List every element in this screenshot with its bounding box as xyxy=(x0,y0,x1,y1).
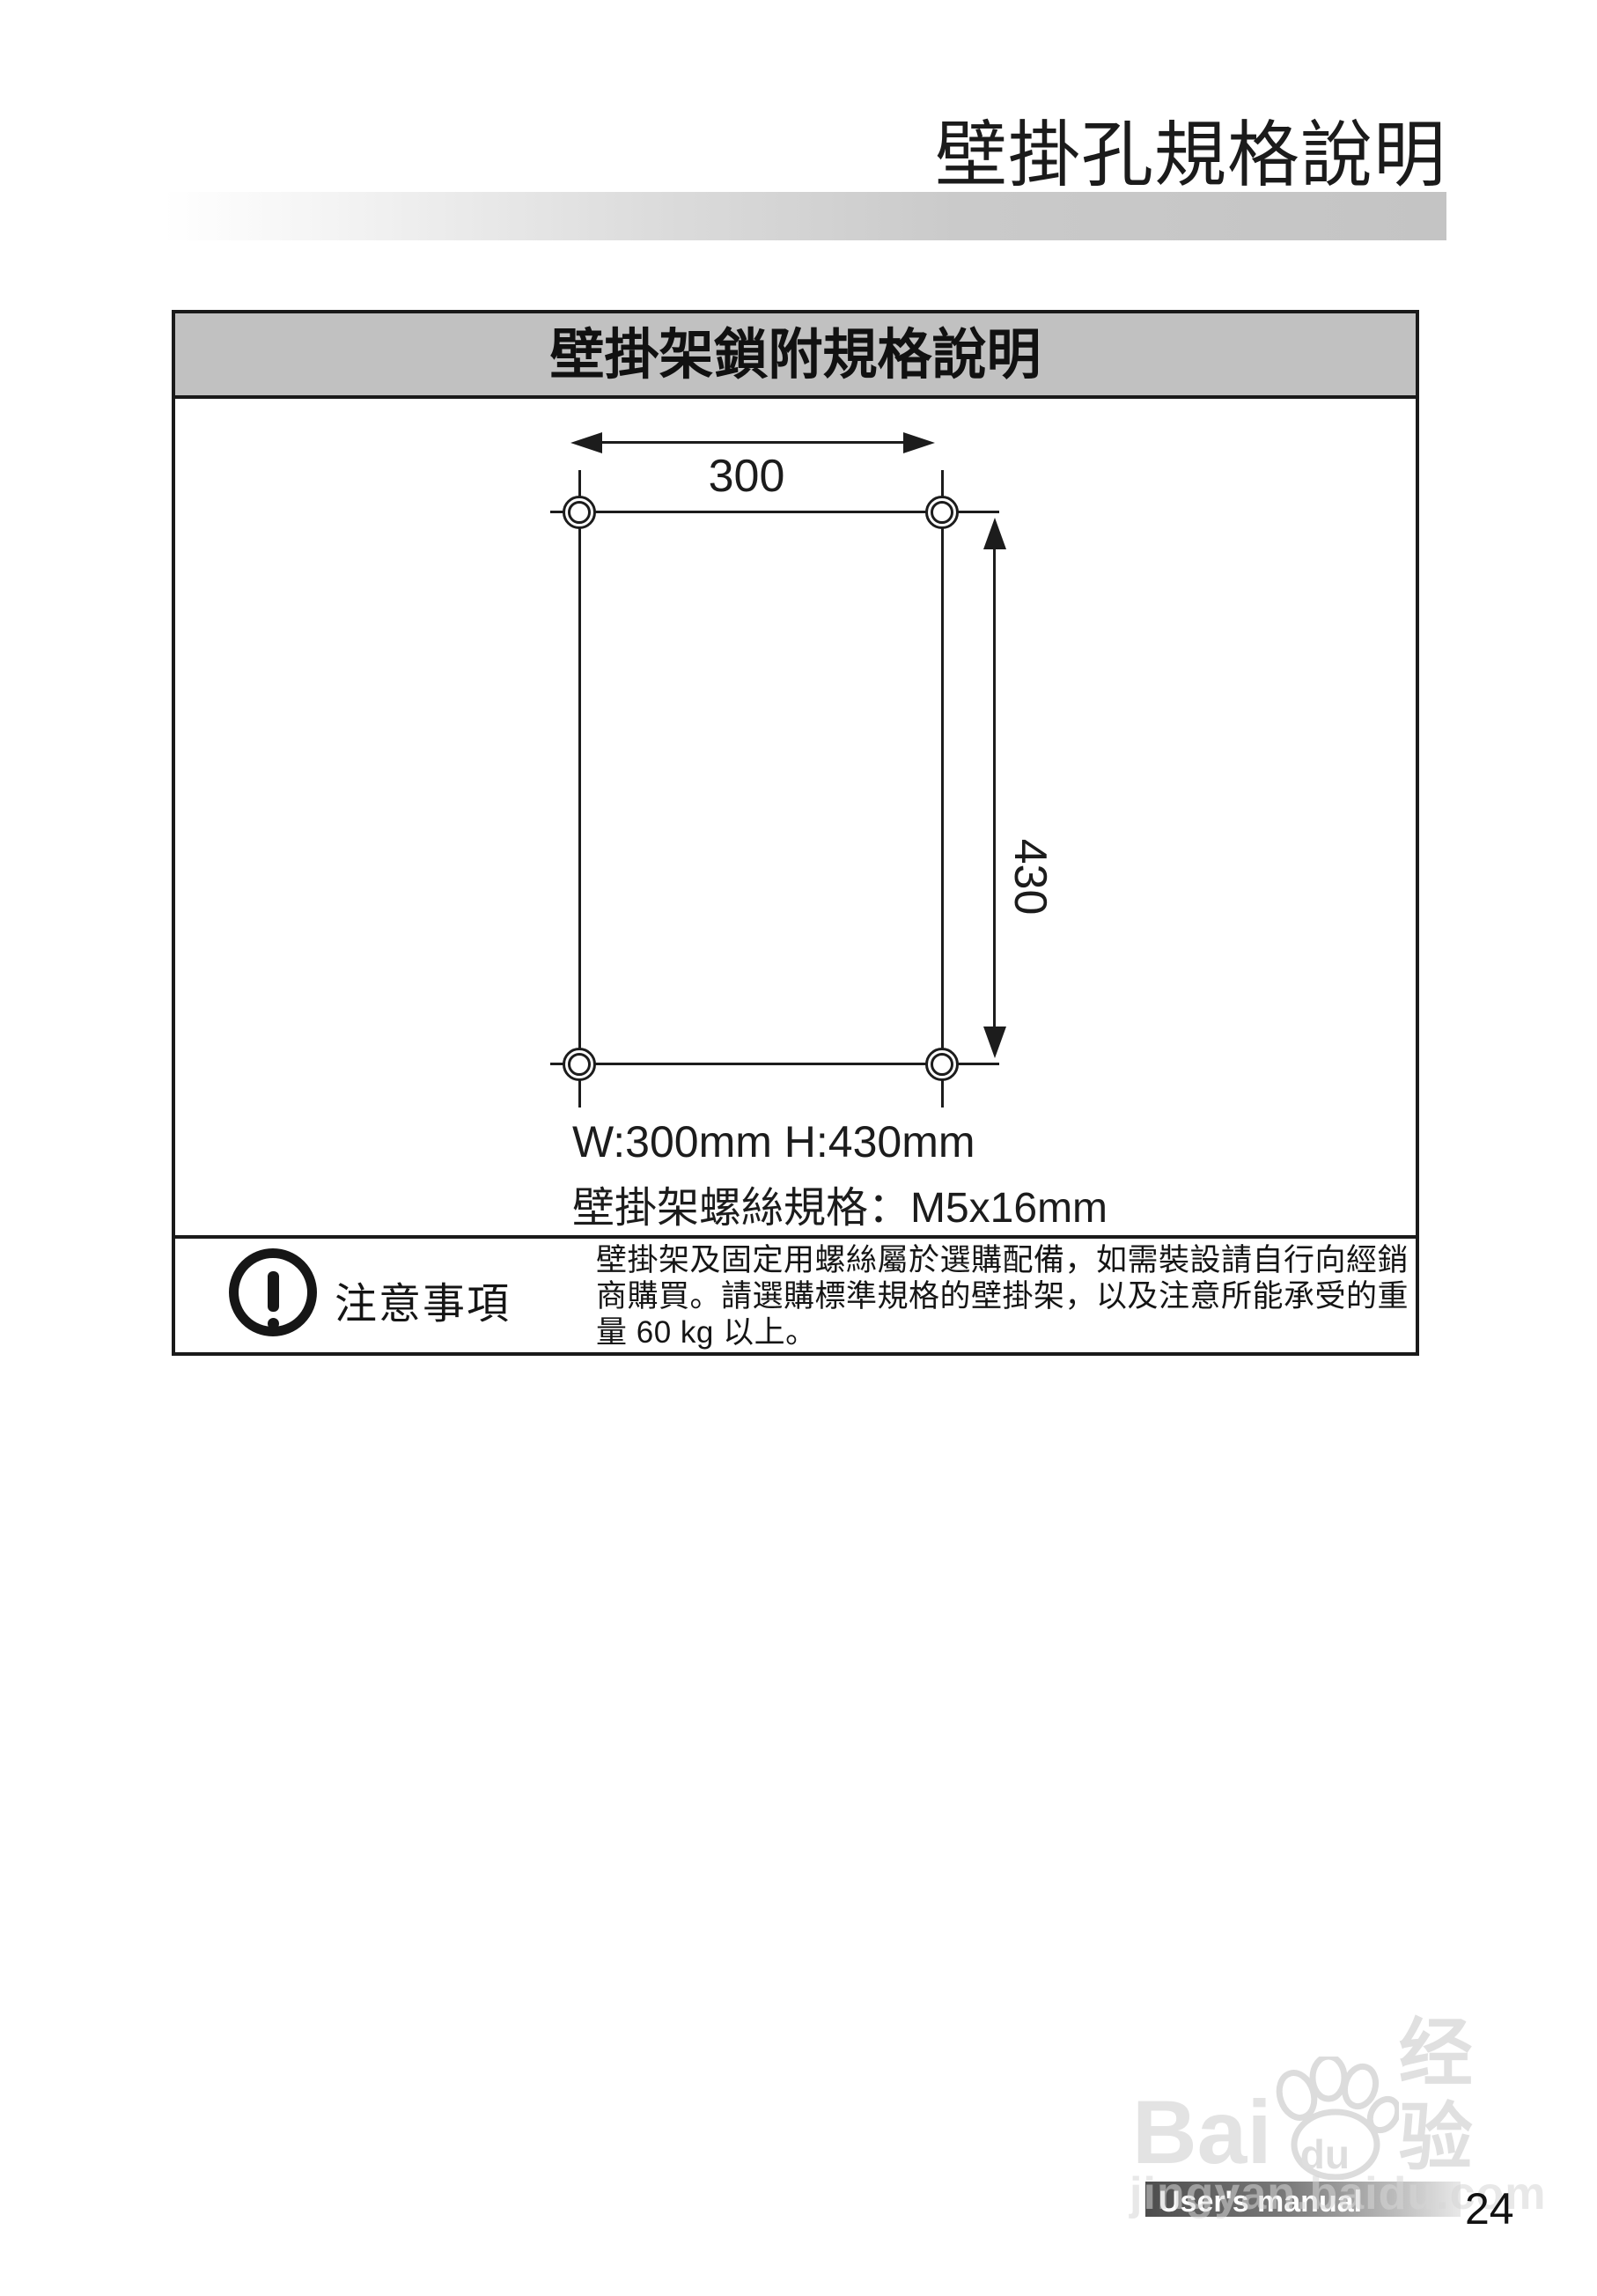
watermark-baidu-logo: Bai du 经验 xyxy=(1132,2057,1511,2180)
mount-hole-inner-ring xyxy=(931,1053,953,1076)
size-label: W:300mm H:430mm xyxy=(572,1116,975,1167)
title-underline-bar xyxy=(163,192,1446,240)
spec-box-header: 壁掛架鎖附規格說明 xyxy=(175,313,1416,399)
page-title: 壁掛孔規格說明 xyxy=(0,118,1446,194)
mount-hole-inner-ring xyxy=(568,1053,591,1076)
mount-hole-top-left xyxy=(563,496,596,529)
caution-text: 壁掛架及固定用螺絲屬於選購配備，如需裝設請自行向經銷 商購買。請選購標準規格的壁… xyxy=(596,1242,1428,1350)
mount-hole-inner-ring xyxy=(931,501,953,524)
dimension-label-width: 300 xyxy=(659,450,835,503)
exclamation-icon xyxy=(229,1248,317,1336)
mount-hole-top-right xyxy=(925,496,959,529)
mount-hole-inner-ring xyxy=(568,501,591,524)
dimension-line xyxy=(993,544,996,1032)
arrowhead-down-icon xyxy=(983,1027,1006,1058)
arrowhead-right-icon xyxy=(903,432,935,453)
watermark-jingyan-text: 经验 xyxy=(1399,2011,1511,2180)
crosshair-line-left xyxy=(578,470,581,1108)
caution-label: 注意事項 xyxy=(335,1269,511,1330)
dimension-line xyxy=(597,441,909,444)
page-number: 24 xyxy=(1465,2183,1514,2234)
paw-icon: du xyxy=(1267,2057,1399,2180)
exclamation-dot xyxy=(268,1318,279,1329)
height-dimension-arrow xyxy=(983,518,1006,1058)
watermark-bai-text: Bai xyxy=(1132,2085,1272,2180)
screw-spec-label: 壁掛架螺絲規格：M5x16mm xyxy=(572,1173,1108,1234)
crosshair-line-right xyxy=(941,470,944,1108)
dimension-label-height: 430 xyxy=(1004,806,1056,947)
exclamation-bar xyxy=(268,1271,279,1312)
mount-hole-bottom-right xyxy=(925,1048,959,1081)
mount-hole-bottom-left xyxy=(563,1048,596,1081)
caution-section: 注意事項 壁掛架及固定用螺絲屬於選購配備，如需裝設請自行向經銷 商購買。請選購標… xyxy=(175,1235,1416,1352)
spec-box: 壁掛架鎖附規格說明 300 430 W:300mm H:430mm 壁掛架螺絲規… xyxy=(172,310,1419,1356)
